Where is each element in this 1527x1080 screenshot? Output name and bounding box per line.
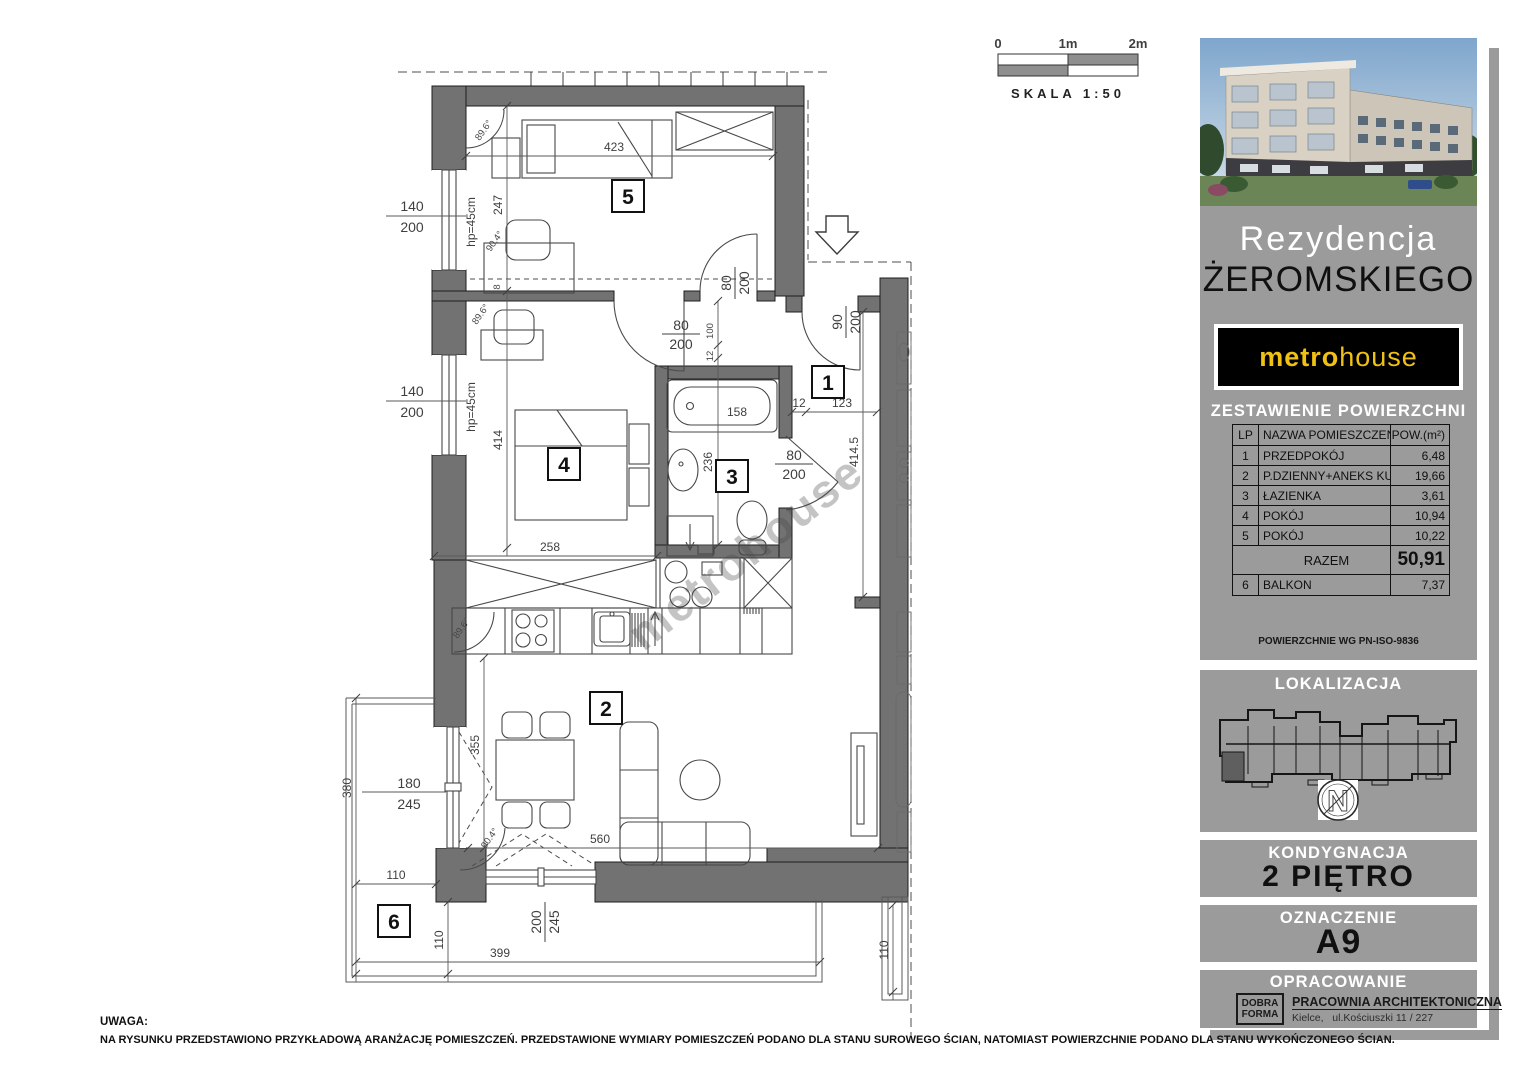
sidebar-main-band: Rezydencja ŻEROMSKIEGO metrohouse ZESTAW…: [1200, 206, 1477, 660]
col-lp: LP: [1233, 425, 1259, 445]
scale-caption: SKALA 1:50: [1011, 86, 1125, 101]
project-title-line1: Rezydencja: [1200, 220, 1477, 259]
table-balkon-row: 6 BALKON 7,37: [1233, 574, 1449, 595]
location-minimap: [1212, 696, 1464, 788]
svg-text:80: 80: [673, 317, 689, 333]
dim-100: 100: [705, 323, 716, 339]
table-row: 3 ŁAZIENKA 3,61: [1233, 485, 1449, 505]
scale-1m: 1m: [1059, 36, 1078, 51]
table-row: 1 PRZEDPOKÓJ 6,48: [1233, 445, 1449, 465]
total-value: 50,91: [1391, 546, 1449, 574]
svg-text:245: 245: [397, 796, 421, 812]
dim-110b: 110: [432, 930, 446, 949]
svg-text:80: 80: [786, 447, 802, 463]
dimension-texts: 423 247 414 258 158 236 355 560 399 380 …: [340, 140, 891, 960]
room-label-6: 6: [388, 911, 400, 934]
company-address: Kielce, ul.Kościuszki 11 / 227: [1292, 1012, 1502, 1024]
scale-0: 0: [994, 36, 1001, 51]
project-title-line2: ŻEROMSKIEGO: [1200, 260, 1477, 300]
svg-text:200: 200: [400, 219, 424, 235]
dim-158: 158: [727, 405, 747, 419]
svg-text:90.4°: 90.4°: [479, 826, 501, 851]
svg-text:180: 180: [397, 775, 421, 791]
frac-window1: 140 200: [400, 198, 424, 235]
svg-text:140: 140: [400, 198, 424, 214]
table-row: 4 POKÓJ 10,94: [1233, 505, 1449, 525]
note-title: UWAGA:: [100, 1016, 148, 1028]
oznaczenie-value: A9: [1200, 923, 1477, 962]
oznaczenie-section: OZNACZENIE A9: [1200, 905, 1477, 962]
scale-bar: 0 1m 2m SKALA 1:50: [994, 36, 1147, 101]
dim-8: 8: [492, 284, 503, 289]
col-name: NAZWA POMIESZCZENIA: [1259, 425, 1391, 445]
table-total-row: RAZEM 50,91: [1233, 545, 1449, 574]
metrohouse-logo: metrohouse: [1214, 324, 1463, 390]
frac-entry: 90 200: [829, 306, 863, 338]
svg-text:200: 200: [400, 404, 424, 420]
svg-text:140: 140: [400, 383, 424, 399]
dim-247: 247: [491, 195, 505, 215]
balcony-door: [434, 727, 492, 848]
lokalizacja-section: LOKALIZACJA N: [1200, 670, 1477, 832]
highlighted-unit: [1222, 752, 1244, 781]
entrance-arrow-icon: [816, 216, 858, 254]
svg-text:90: 90: [829, 314, 845, 330]
dim-258: 258: [540, 540, 560, 554]
kondygnacja-section: KONDYGNACJA 2 PIĘTRO: [1200, 840, 1477, 897]
floor-plan-drawing: 423 247 414 258 158 236 355 560 399 380 …: [0, 0, 1200, 1080]
svg-text:89.6°: 89.6°: [470, 302, 492, 327]
frac-balcony-door: 180 245: [397, 775, 421, 812]
svg-text:N: N: [1327, 785, 1349, 818]
dim-12b: 12: [705, 351, 716, 362]
room-label-5: 5: [622, 186, 634, 209]
scale-2m: 2m: [1129, 36, 1148, 51]
window-2: [432, 355, 466, 455]
svg-text:80: 80: [718, 275, 734, 291]
sidebar-shadow-right: [1489, 48, 1499, 1040]
logo-house: house: [1339, 342, 1418, 373]
table-header: ZESTAWIENIE POWIERZCHNI: [1200, 402, 1477, 421]
sidebar: Rezydencja ŻEROMSKIEGO metrohouse ZESTAW…: [1200, 38, 1477, 1028]
building-photo: [1200, 38, 1477, 206]
dim-355: 355: [468, 735, 482, 755]
svg-text:245: 245: [546, 910, 562, 934]
compass-icon: N: [1310, 778, 1366, 830]
area-table: LP NAZWA POMIESZCZENIA POW.(m²) 1 PRZEDP…: [1232, 424, 1450, 596]
dim-110c: 110: [877, 940, 891, 959]
opracowanie-label: OPRACOWANIE: [1200, 973, 1477, 992]
dim-380: 380: [340, 778, 354, 798]
dim-hp1: hp=45cm: [464, 197, 478, 247]
dim-110a: 110: [386, 868, 405, 882]
dim-560: 560: [590, 832, 610, 846]
table-row: 2 P.DZIENNY+ANEKS KUCH. 19,66: [1233, 465, 1449, 485]
iso-note: POWIERZCHNIE WG PN-ISO-9836: [1200, 636, 1477, 647]
frac-slide: 200 245: [528, 902, 562, 942]
svg-text:200: 200: [736, 271, 752, 295]
svg-text:200: 200: [847, 310, 863, 334]
opracowanie-section: OPRACOWANIE DOBRA FORMA PRACOWNIA ARCHIT…: [1200, 970, 1477, 1028]
kondygnacja-value: 2 PIĘTRO: [1200, 860, 1477, 894]
svg-text:200: 200: [528, 910, 544, 934]
dim-hp2: hp=45cm: [464, 382, 478, 432]
room-label-4: 4: [558, 454, 570, 477]
company-name: PRACOWNIA ARCHITEKTONICZNA: [1292, 995, 1502, 1010]
svg-text:200: 200: [669, 336, 693, 352]
note-body: NA RYSUNKU PRZEDSTAWIONO PRZYKŁADOWĄ ARA…: [100, 1034, 1395, 1046]
room-label-3: 3: [726, 466, 738, 489]
frac-door4: 80 200: [662, 317, 700, 352]
frac-window2: 140 200: [400, 383, 424, 420]
total-label: RAZEM: [1233, 546, 1391, 574]
room-label-1: 1: [822, 372, 834, 395]
col-area: POW.(m²): [1391, 425, 1449, 445]
svg-text:90.4°: 90.4°: [484, 229, 506, 254]
living-furniture: [496, 712, 877, 865]
room-label-2: 2: [600, 698, 612, 721]
lokalizacja-label: LOKALIZACJA: [1200, 675, 1477, 694]
floor-plan-page: { "scale_bar": { "zero": "0", "one": "1m…: [0, 0, 1527, 1080]
dim-12a: 12: [792, 396, 806, 410]
dim-423: 423: [604, 140, 624, 154]
dim-236: 236: [701, 452, 715, 472]
window-1: [432, 170, 466, 270]
frac-door5: 80 200: [718, 267, 752, 299]
logo-metro: metro: [1259, 342, 1339, 373]
table-row: 5 POKÓJ 10,22: [1233, 525, 1449, 545]
dim-414: 414: [491, 430, 505, 450]
dobra-forma-logo: DOBRA FORMA: [1236, 993, 1284, 1025]
dim-399: 399: [490, 946, 510, 960]
